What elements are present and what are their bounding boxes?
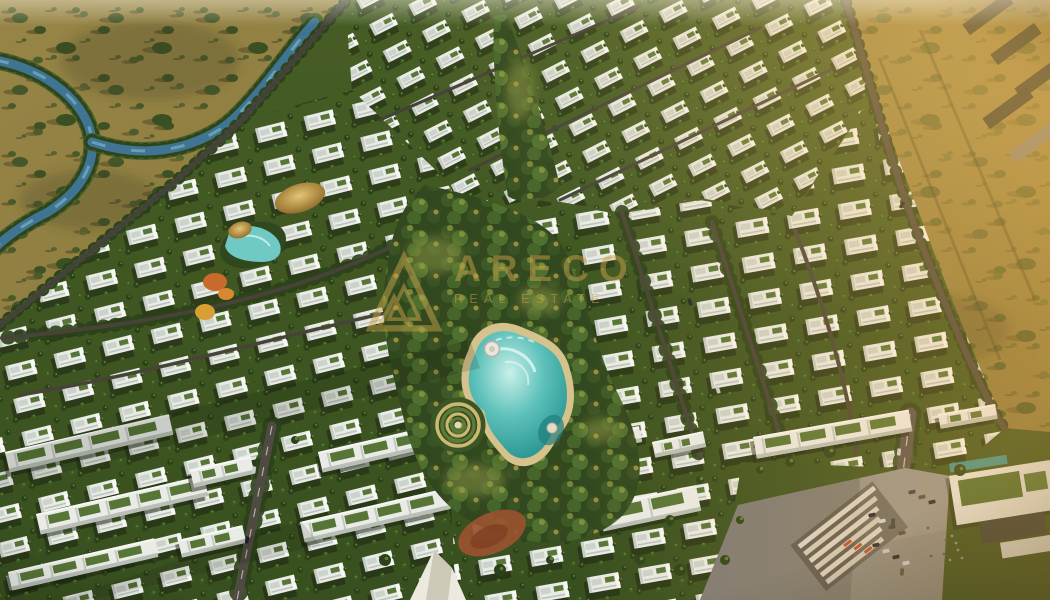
aerial-render-stage: ARECO REAL ESTATE — [0, 0, 1050, 600]
sunlight-glow — [0, 0, 1050, 600]
masterplan-render — [0, 0, 1050, 600]
